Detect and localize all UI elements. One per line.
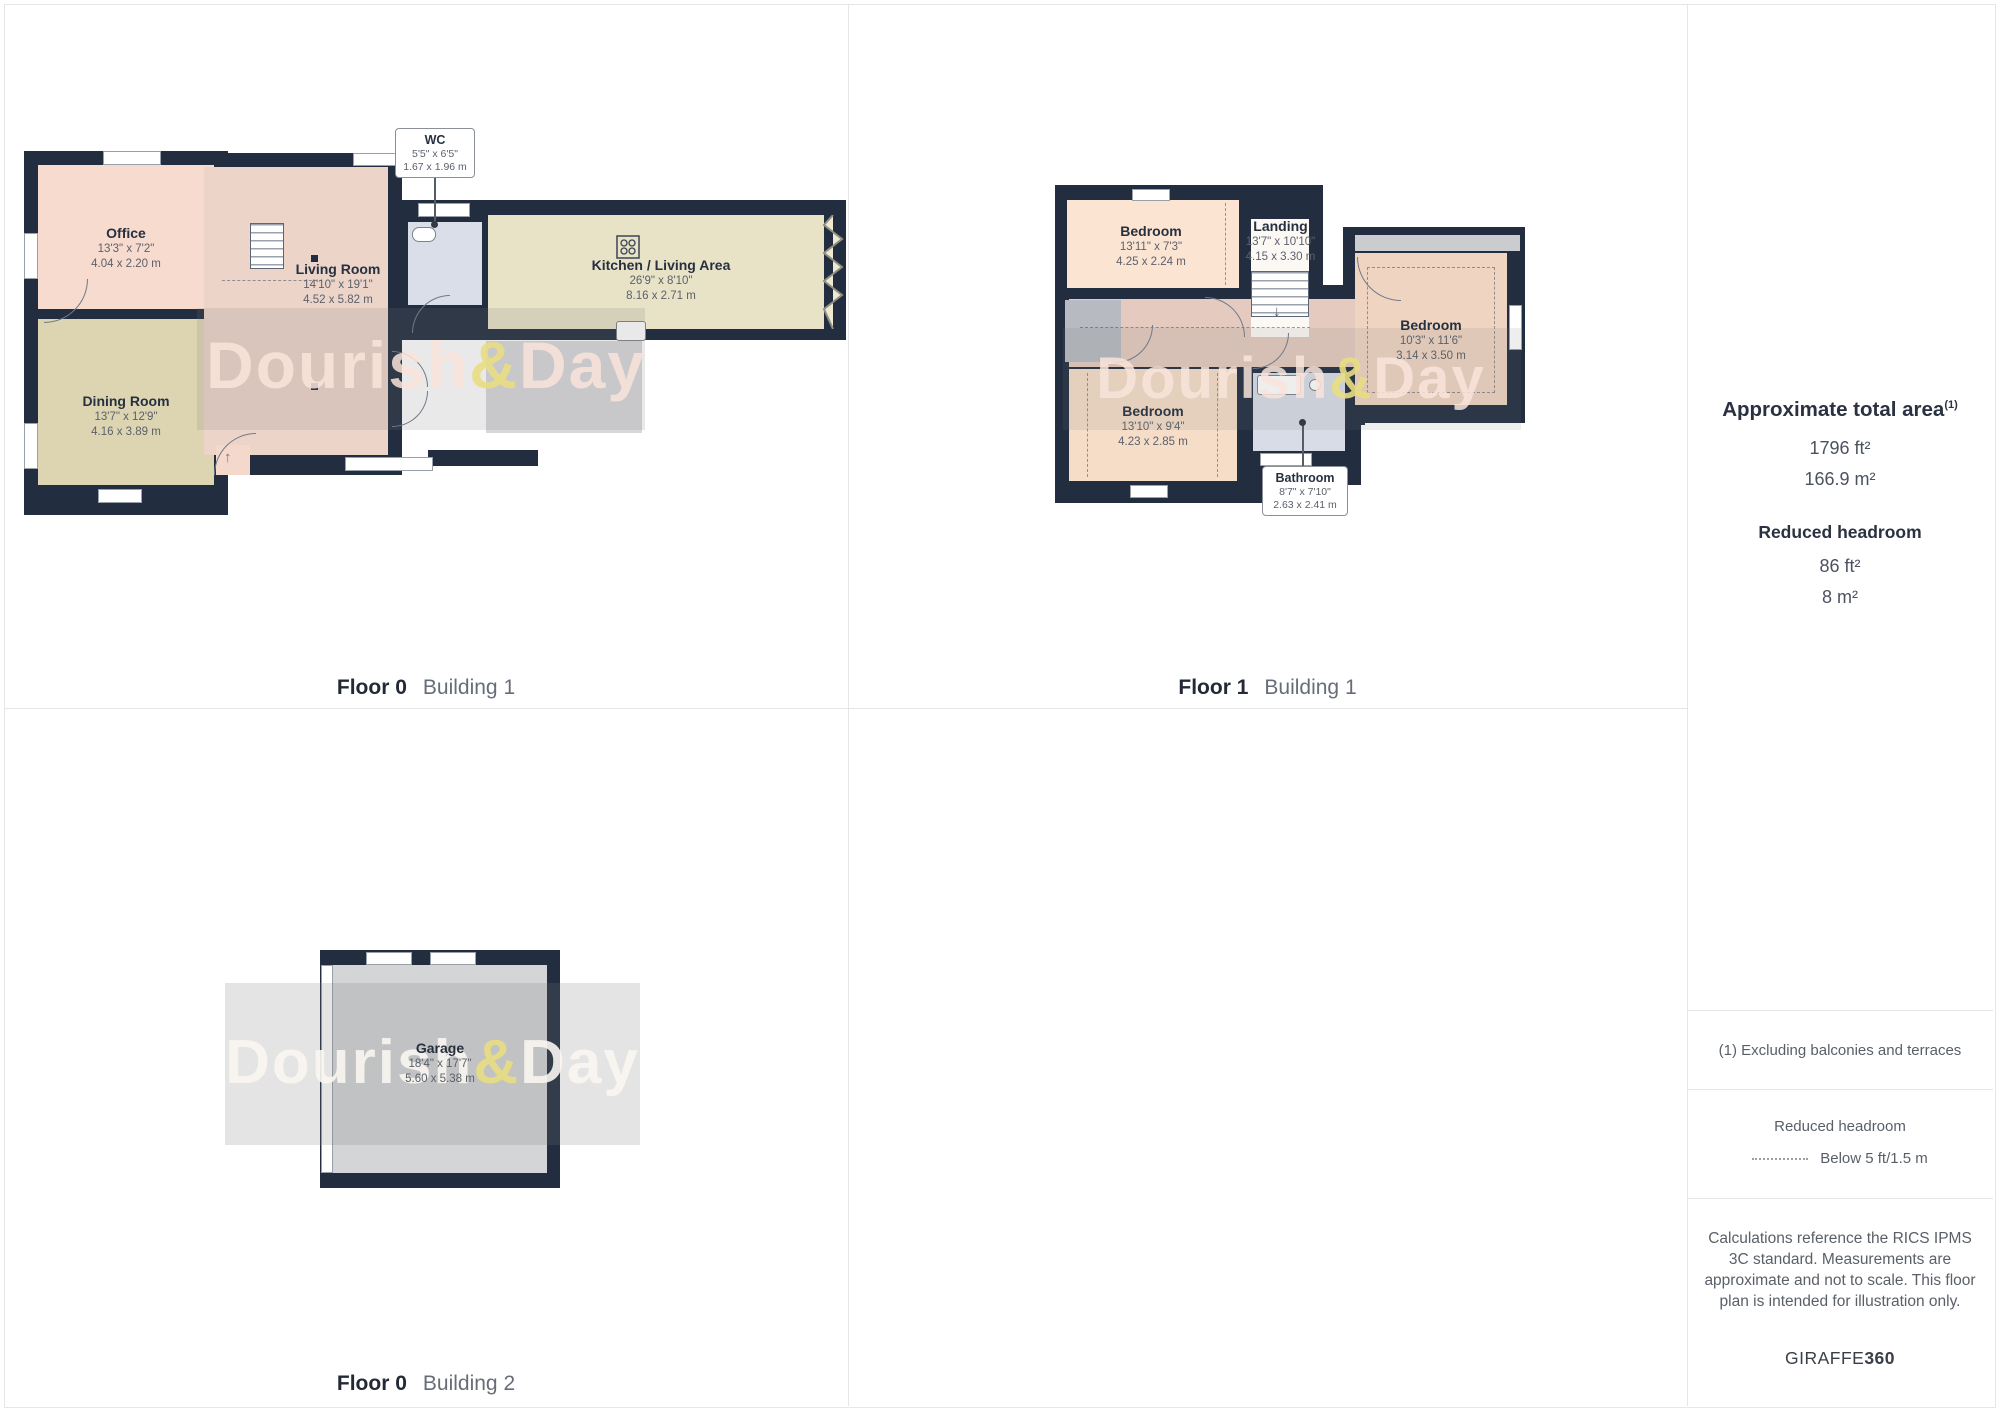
total-area-m: 166.9 m²: [1688, 469, 1992, 490]
room-dims-ft: 13'7" x 12'9": [38, 411, 214, 424]
legend-label: Below 5 ft/1.5 m: [1820, 1150, 1928, 1167]
room-dims-ft: 13'3" x 7'2": [38, 243, 214, 256]
total-area-title: Approximate total area(1): [1688, 398, 1992, 422]
floor-label: Floor 1: [1178, 676, 1248, 699]
room-name: Dining Room: [38, 393, 214, 409]
building-label: Building 2: [423, 1372, 515, 1395]
room-name: WC: [398, 133, 472, 147]
room-dims-m: 4.04 x 2.20 m: [38, 258, 214, 271]
window: [430, 952, 476, 965]
room-dims-m: 4.52 x 5.82 m: [248, 294, 428, 307]
watermark-text: Dourish&Day: [196, 300, 656, 430]
dashed-line-icon: [1752, 1158, 1808, 1160]
room-label-wc: WC 5'5" x 6'5" 1.67 x 1.96 m: [395, 128, 475, 178]
stairs-down-arrow-icon: ↓: [1273, 303, 1281, 320]
room-label-office: Office 13'3" x 7'2" 4.04 x 2.20 m: [38, 225, 214, 272]
room-name: Kitchen / Living Area: [496, 257, 826, 273]
window: [366, 952, 412, 965]
footnote-marker: (1): [1944, 399, 1957, 411]
room-label-garage: Garage 18'4" x 17'7" 5.60 x 5.38 m: [380, 1040, 500, 1087]
room-dims-ft: 18'4" x 17'7": [380, 1058, 500, 1071]
caption-floor0-building1: Floor 0Building 1: [4, 676, 848, 700]
legend-row: Below 5 ft/1.5 m: [1688, 1150, 1992, 1167]
room-label-dining: Dining Room 13'7" x 12'9" 4.16 x 3.89 m: [38, 393, 214, 440]
building-label: Building 1: [423, 676, 515, 699]
room-dims-ft: 8'7" x 7'10": [1265, 486, 1345, 498]
floor-label: Floor 0: [337, 1372, 407, 1395]
eaves-strip: [1355, 235, 1520, 251]
total-area-ft: 1796 ft²: [1688, 438, 1992, 459]
room-label-bedroom-2: Bedroom 10'3" x 11'6" 3.14 x 3.50 m: [1355, 317, 1507, 364]
floor-label: Floor 0: [337, 676, 407, 699]
sidebar-divider-3: [1687, 1198, 1993, 1199]
brand-logo: GIRAFFE360: [1688, 1348, 1992, 1369]
window: [1130, 485, 1168, 498]
room-dims-m: 4.23 x 2.85 m: [1069, 436, 1237, 449]
room-name: Garage: [380, 1040, 500, 1056]
room-dims-m: 5.60 x 5.38 m: [380, 1073, 500, 1086]
room-label-bathroom: Bathroom 8'7" x 7'10" 2.63 x 2.41 m: [1262, 466, 1348, 516]
watermark-part2: Day: [519, 328, 646, 402]
caption-floor0-building2: Floor 0Building 2: [4, 1372, 848, 1396]
stove-icon: [616, 235, 640, 259]
room-dims-m: 8.16 x 2.71 m: [496, 290, 826, 303]
sidebar-divider-2: [1687, 1089, 1993, 1090]
wall-segment: [428, 450, 538, 466]
window: [1132, 189, 1170, 201]
sidebar-divider-1: [1687, 1010, 1993, 1011]
room-dims-m: 1.67 x 1.96 m: [398, 161, 472, 173]
room-name: Bathroom: [1265, 471, 1345, 485]
callout-pointer: [434, 175, 436, 223]
sidebar-disclaimer: Calculations reference the RICS IPMS 3C …: [1700, 1228, 1980, 1312]
brand-name: GIRAFFE: [1785, 1348, 1864, 1368]
room-name: Office: [38, 225, 214, 241]
window: [1260, 453, 1312, 466]
watermark-part2: Day: [520, 1028, 640, 1097]
horizontal-divider: [4, 708, 1687, 709]
window: [103, 151, 161, 165]
brand-suffix: 360: [1864, 1348, 1895, 1368]
callout-dot: [1299, 419, 1306, 426]
window: [345, 457, 433, 471]
callout-dot: [431, 221, 438, 228]
total-area-title-text: Approximate total area: [1722, 398, 1944, 421]
vertical-divider-2: [1687, 4, 1688, 1406]
reduced-headroom-title: Reduced headroom: [1688, 522, 1992, 543]
room-dims-m: 2.63 x 2.41 m: [1265, 499, 1345, 511]
toilet-icon: [412, 227, 436, 242]
window: [418, 203, 470, 217]
reduced-headroom-m: 8 m²: [1688, 587, 1992, 608]
room-label-landing: Landing 13'7" x 10'10" 4.15 x 3.30 m: [1203, 218, 1358, 265]
reduced-headroom-ft: 86 ft²: [1688, 556, 1992, 577]
room-dims-ft: 14'10" x 19'1": [248, 279, 428, 292]
room-dims-m: 4.15 x 3.30 m: [1203, 251, 1358, 264]
watermark-part1: Dourish: [206, 328, 469, 402]
sidebar-footnote: (1) Excluding balconies and terraces: [1688, 1042, 1992, 1059]
room-name: Bedroom: [1355, 317, 1507, 333]
floorplan-page: ↑ Office 13'3" x 7'2" 4.04 x 2.20 m Dini…: [0, 0, 2000, 1415]
sidebar-area-summary: Approximate total area(1) 1796 ft² 166.9…: [1688, 398, 1992, 608]
room-label-living: Living Room 14'10" x 19'1" 4.52 x 5.82 m: [248, 261, 428, 308]
room-dims-ft: 10'3" x 11'6": [1355, 335, 1507, 348]
room-dims-m: 4.16 x 3.89 m: [38, 426, 214, 439]
watermark-amp: &: [469, 328, 519, 402]
room-name: Living Room: [248, 261, 428, 277]
caption-floor1-building1: Floor 1Building 1: [848, 676, 1687, 700]
room-dims-ft: 5'5" x 6'5": [398, 148, 472, 160]
watermark-part1: Dourish: [1096, 346, 1329, 411]
room-label-kitchen: Kitchen / Living Area 26'9" x 8'10" 8.16…: [496, 257, 826, 304]
room-name: Landing: [1203, 218, 1358, 234]
callout-pointer: [1302, 423, 1304, 467]
window: [98, 489, 142, 503]
window: [24, 233, 38, 279]
building-label: Building 1: [1264, 676, 1356, 699]
room-dims-ft: 26'9" x 8'10": [496, 275, 826, 288]
entry-arrow-icon: ↑: [224, 449, 232, 466]
room-dims-ft: 13'7" x 10'10": [1203, 236, 1358, 249]
legend-title: Reduced headroom: [1688, 1118, 1992, 1135]
window: [24, 423, 38, 469]
room-dims-m: 3.14 x 3.50 m: [1355, 350, 1507, 363]
